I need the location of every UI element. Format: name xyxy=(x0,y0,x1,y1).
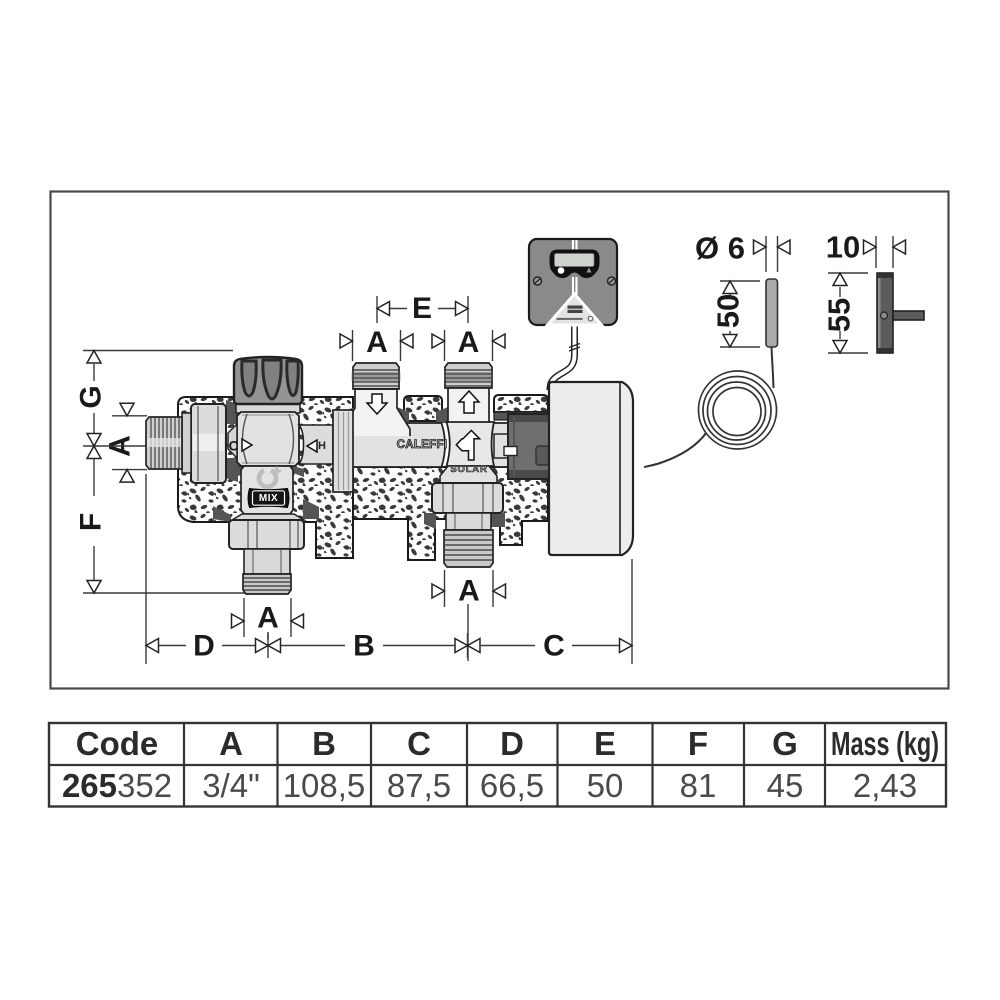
svg-text:87,5: 87,5 xyxy=(387,767,451,804)
svg-text:Code: Code xyxy=(76,725,159,762)
svg-text:45: 45 xyxy=(767,767,804,804)
svg-text:50: 50 xyxy=(587,767,624,804)
svg-text:55: 55 xyxy=(822,298,857,332)
svg-text:265352: 265352 xyxy=(62,767,172,804)
svg-text:G: G xyxy=(772,725,798,762)
svg-text:B: B xyxy=(353,630,375,663)
svg-text:A: A xyxy=(458,326,480,359)
svg-text:MIX: MIX xyxy=(259,493,278,504)
svg-text:10: 10 xyxy=(826,230,860,265)
svg-text:A: A xyxy=(257,602,279,635)
svg-text:C: C xyxy=(228,438,238,454)
svg-text:G: G xyxy=(75,385,108,408)
svg-text:66,5: 66,5 xyxy=(480,767,544,804)
svg-text:F: F xyxy=(75,513,108,531)
svg-text:F: F xyxy=(688,725,708,762)
svg-text:108,5: 108,5 xyxy=(283,767,366,804)
svg-text:A: A xyxy=(458,575,480,608)
svg-text:D: D xyxy=(500,725,524,762)
svg-text:3/4": 3/4" xyxy=(202,767,260,804)
svg-text:2,43: 2,43 xyxy=(853,767,917,804)
svg-text:H: H xyxy=(318,440,326,452)
svg-text:C: C xyxy=(407,725,431,762)
svg-text:SOLAR: SOLAR xyxy=(450,464,487,475)
svg-text:B: B xyxy=(312,725,336,762)
svg-text:Mass (kg): Mass (kg) xyxy=(831,725,939,762)
svg-text:D: D xyxy=(193,630,215,663)
svg-text:A: A xyxy=(366,326,388,359)
svg-text:50: 50 xyxy=(711,294,746,328)
svg-text:81: 81 xyxy=(680,767,717,804)
svg-text:E: E xyxy=(412,292,432,325)
svg-text:CALEFFI: CALEFFI xyxy=(397,439,448,451)
svg-text:A: A xyxy=(219,725,243,762)
svg-text:Ø 6: Ø 6 xyxy=(695,231,745,266)
svg-text:C: C xyxy=(543,630,565,663)
svg-text:E: E xyxy=(594,725,616,762)
